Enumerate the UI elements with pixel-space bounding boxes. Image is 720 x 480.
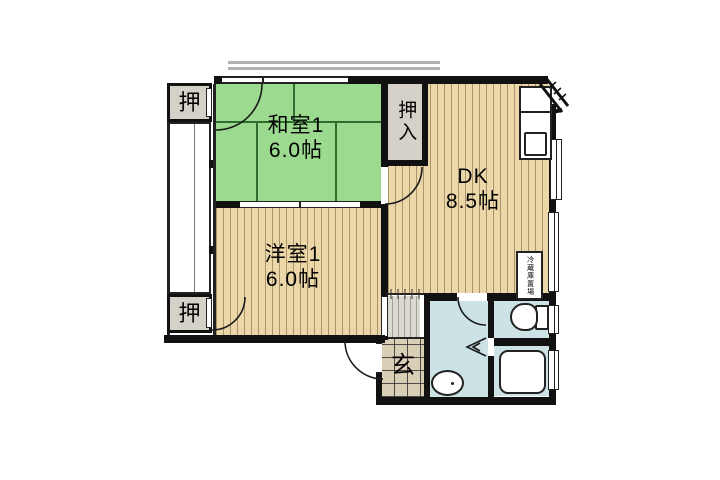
door-gap <box>381 167 388 204</box>
front-door-leaf <box>376 343 382 373</box>
window-toilet <box>548 305 559 334</box>
room-size: 6.0帖 <box>266 268 320 293</box>
wall <box>360 201 381 208</box>
sliding-door <box>381 297 388 336</box>
oshiire-label: 押入 <box>388 84 422 160</box>
wall <box>376 397 556 405</box>
oshiire-closet: 押入 <box>388 84 428 166</box>
wall <box>216 201 240 208</box>
shutter-box-line <box>228 67 440 70</box>
window-bath <box>548 350 559 390</box>
room-size: 8.5帖 <box>446 190 500 215</box>
wall <box>424 293 430 405</box>
window-dk <box>548 212 559 292</box>
room-name: DK <box>457 165 488 190</box>
floor-plan: 押 押 押入 冷蔵庫置場 <box>0 0 720 480</box>
window-divider <box>262 76 264 84</box>
youshitsu-label: 洋室1 6.0帖 <box>223 240 363 296</box>
hallway-floor <box>386 296 420 337</box>
fridge-space-box: 冷蔵庫置場 <box>516 251 543 300</box>
wall <box>494 338 556 346</box>
kitchen-counter-divider <box>520 111 551 113</box>
genkan-label: 玄 <box>383 350 423 382</box>
window-strip-line <box>194 124 195 292</box>
room-name: 玄 <box>391 352 415 380</box>
bathtub-icon <box>499 350 546 394</box>
kitchen-sink-icon <box>524 132 547 156</box>
washbasin-drain <box>451 382 454 385</box>
wall <box>164 335 385 343</box>
shutter-box-line <box>228 61 440 64</box>
step-edge <box>386 293 424 295</box>
fusuma-divider <box>299 201 301 208</box>
toilet-icon <box>510 303 538 331</box>
closet-label: 押 <box>178 301 200 327</box>
room-name: 和室1 <box>268 114 325 139</box>
door-gap <box>457 293 487 301</box>
closet-door-gap <box>206 298 212 328</box>
washbasin-icon <box>431 370 464 396</box>
dk-label: DK 8.5帖 <box>408 162 538 218</box>
closet-door-gap <box>206 88 212 117</box>
closet-label: 押 <box>178 90 200 116</box>
room-name: 洋室1 <box>265 243 322 268</box>
window-strip <box>168 122 211 294</box>
wall <box>213 84 216 336</box>
room-size: 6.0帖 <box>269 139 323 164</box>
washitsu-label: 和室1 6.0帖 <box>226 112 366 166</box>
window <box>222 76 348 84</box>
fridge-space-label: 冷蔵庫置場 <box>518 253 541 298</box>
